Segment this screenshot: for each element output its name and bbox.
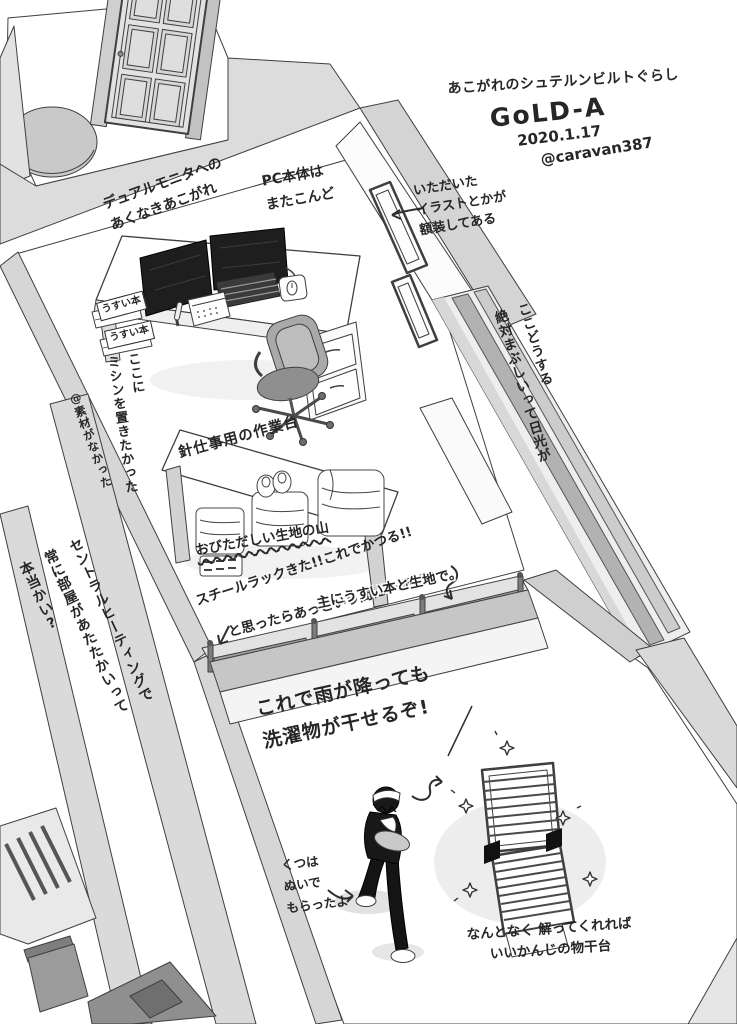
scene-illustration [0,0,737,1024]
entrance-door [90,0,223,140]
isometric-room-illustration: あこがれのシュテルンビルトぐらし GoLD-A 2020.1.17 @carav… [0,0,737,1024]
small-chair [24,936,88,1012]
mouse [278,274,307,301]
